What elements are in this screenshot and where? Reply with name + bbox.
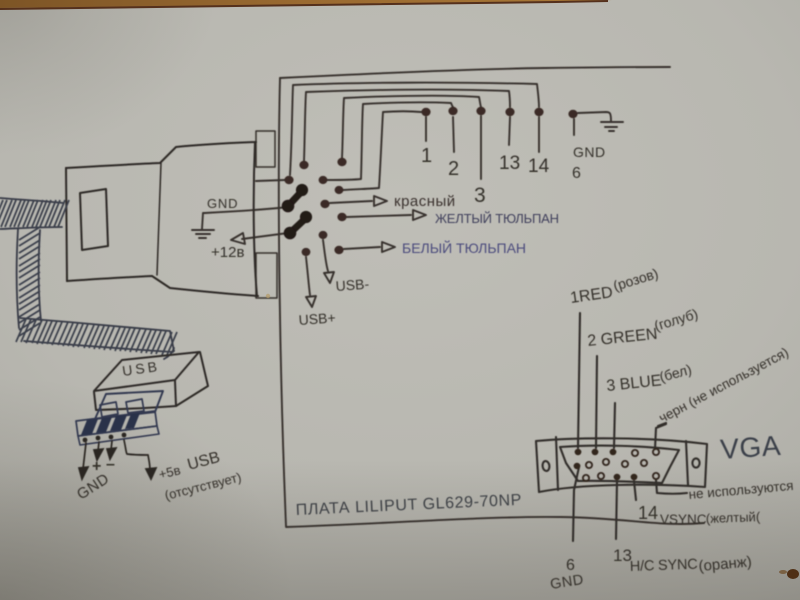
svg-text:13: 13 xyxy=(499,153,520,174)
svg-text:14: 14 xyxy=(528,156,550,177)
svg-text:2: 2 xyxy=(448,158,459,180)
svg-text:–: – xyxy=(106,456,115,473)
svg-text:3: 3 xyxy=(474,184,486,207)
svg-text:USB+: USB+ xyxy=(298,309,336,328)
svg-text:H/C SYNC: H/C SYNC xyxy=(630,557,698,575)
svg-text:+12в: +12в xyxy=(211,244,244,261)
svg-text:6: 6 xyxy=(566,557,575,574)
svg-text:красный: красный xyxy=(394,193,456,210)
svg-text:GND: GND xyxy=(207,196,238,211)
svg-text:USB-: USB- xyxy=(335,276,370,294)
svg-text:1: 1 xyxy=(421,145,432,167)
svg-text:VGA: VGA xyxy=(719,430,782,465)
svg-text:(желтый(: (желтый( xyxy=(706,509,761,526)
svg-text:6: 6 xyxy=(572,165,581,182)
svg-text:БЕЛЫЙ ТЮЛЬПАН: БЕЛЫЙ ТЮЛЬПАН xyxy=(402,239,526,256)
svg-text:GND: GND xyxy=(573,144,606,160)
svg-text:ЖЕЛТЫЙ ТЮЛЬПАН: ЖЕЛТЫЙ ТЮЛЬПАН xyxy=(435,211,559,226)
svg-text:VSYNC: VSYNC xyxy=(660,512,707,527)
svg-text:14: 14 xyxy=(638,503,658,523)
